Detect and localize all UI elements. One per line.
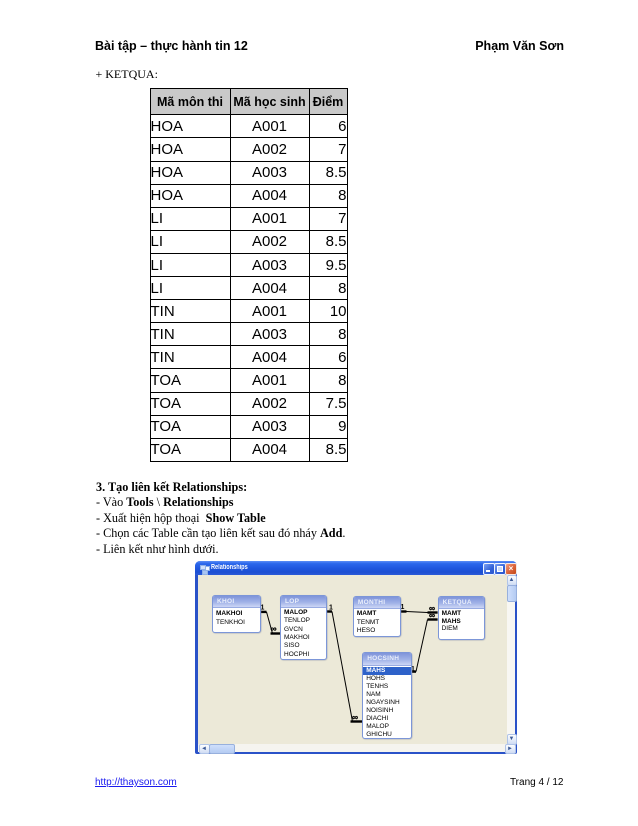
svg-text:∞: ∞: [429, 610, 435, 620]
svg-text:1: 1: [329, 604, 333, 611]
svg-text:1: 1: [401, 604, 405, 611]
svg-text:1: 1: [261, 605, 265, 612]
svg-text:∞: ∞: [271, 624, 277, 634]
svg-text:∞: ∞: [352, 712, 358, 722]
svg-text:1: 1: [411, 666, 415, 673]
